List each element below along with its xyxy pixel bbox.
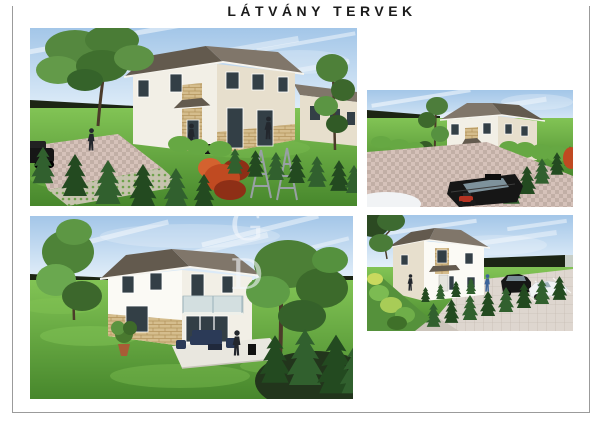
scene-parking-side	[367, 215, 573, 331]
rendering-top-right	[367, 90, 573, 207]
scene-garden-terrace	[30, 216, 353, 399]
page-title: LÁTVÁNY TERVEK	[227, 3, 416, 19]
rendering-bottom-left: G D	[30, 216, 353, 399]
scene-front-perspective	[30, 28, 357, 206]
rendering-top-left	[30, 28, 357, 206]
balcony	[183, 296, 243, 315]
scene-driveway-car	[367, 90, 573, 207]
rendering-bottom-right	[367, 215, 573, 331]
black-bin	[248, 344, 256, 355]
